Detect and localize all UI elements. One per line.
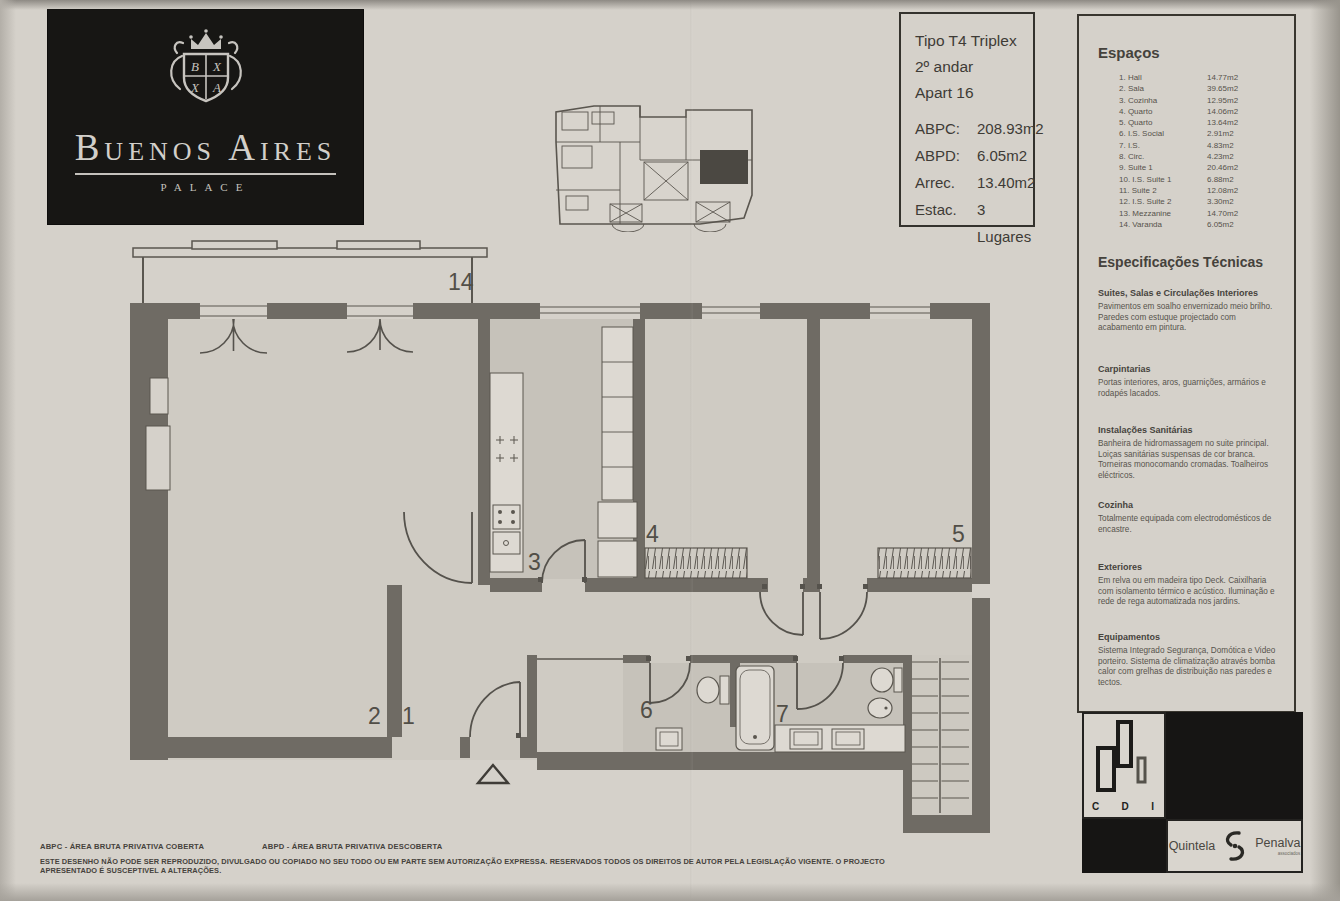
space-row: 13. Mezzanine14.70m2 [1119,208,1289,219]
unit-metric-row: ABPD:6.05m2 [915,142,1033,169]
agency-logo-cell: Quintela Penalva associados [1166,819,1303,873]
room-label-2: 2 [368,703,381,729]
agency-swirl-icon [1222,830,1248,862]
logo-grid-dark-cell [1082,819,1166,873]
toilet-icon [871,668,893,692]
balcony [133,241,487,303]
room-label-7: 7 [776,701,789,727]
key-plan-diagram [548,96,760,232]
crest-letter: X [190,80,200,95]
agency-name-right: Penalva [1255,836,1300,850]
crest-letter: A [212,80,221,95]
copyright-disclaimer: ESTE DESENHO NÃO PODE SER REPRODUZIDO, D… [40,857,940,875]
cdi-letters: C D I [1092,801,1154,812]
space-row: 10. I.S. Suite 16.88m2 [1119,174,1289,185]
agency-sub-label: associados [1278,851,1301,856]
unit-metrics: ABPC:208.93m2ABPD:6.05m2Arrec.13.40m2Est… [915,115,1033,250]
legend-abpd: ABPD - ÁREA BRUTA PRIVATIVA DESCOBERTA [262,842,442,851]
space-row: 7. I.S.4.83m2 [1119,140,1289,151]
space-row: 5. Quarto13.64m2 [1119,117,1289,128]
cdi-letter: D [1122,801,1129,812]
space-row: 3. Cozinha12.95m2 [1119,95,1289,106]
area-legend: ABPC - ÁREA BRUTA PRIVATIVA COBERTAABPD … [40,842,500,851]
space-row: 1. Hall14.77m2 [1119,72,1289,83]
cdi-logo-icon [1094,720,1156,798]
room-label-3: 3 [528,549,541,575]
entrance-triangle-icon [478,765,508,783]
cdi-logo-cell: C D I [1082,712,1166,819]
room-label-14: 14 [448,269,474,295]
floorplan-sheet: B X X A Buenos Aires PALACE [0,0,1340,901]
technical-specs-title: Especificações Técnicas [1098,254,1263,270]
brand-subtitle: PALACE [48,181,363,193]
crest-letter: B [191,59,199,74]
bidet-icon [868,698,892,718]
unit-info-box: Tipo T4 Triplex2º andarApart 16 ABPC:208… [899,12,1035,227]
agency-name-left: Quintela [1169,839,1216,853]
space-row: 6. I.S. Social2.91m2 [1119,128,1289,139]
cdi-letter: I [1151,801,1154,812]
spec-section: CozinhaTotalmente equipada com electrodo… [1098,500,1278,535]
unit-metric-row: ABPC:208.93m2 [915,115,1033,142]
room-label-5: 5 [952,521,965,547]
room-label-4: 4 [646,521,659,547]
unit-info-line: 2º andar [915,54,1033,80]
key-plan-unit-highlight [700,150,748,184]
cdi-letter: C [1092,801,1099,812]
floorplan-svg: 142134567 [120,236,1000,852]
brand-title: Buenos Aires [48,126,363,169]
spaces-title: Espaços [1098,44,1160,61]
space-row: 4. Quarto14.06m2 [1119,106,1289,117]
logo-grid: C D I Quintela Penalva associados [1082,712,1303,873]
unit-info-lines: Tipo T4 Triplex2º andarApart 16 [915,28,1033,106]
spaces-list: 1. Hall14.77m22. Sala39.65m23. Cozinha12… [1119,72,1289,230]
spec-section: ExterioresEm relva ou em madeira tipo De… [1098,562,1278,608]
spec-section: Suites, Salas e Circulações InterioresPa… [1098,288,1278,334]
spec-section: CarpintariasPortas interiores, aros, gua… [1098,364,1278,399]
brand-rule [75,173,336,175]
photo-edge [1310,0,1340,901]
space-row: 9. Suite 120.46m2 [1119,162,1289,173]
unit-info-line: Tipo T4 Triplex [915,28,1033,54]
space-row: 12. I.S. Suite 23.30m2 [1119,196,1289,207]
crest-icon: B X X A [146,26,266,126]
spec-section: EquipamentosSistema Integrado Segurança,… [1098,632,1278,688]
unit-info-line: Apart 16 [915,80,1033,106]
space-row: 2. Sala39.65m2 [1119,83,1289,94]
brand-logo-box: B X X A Buenos Aires PALACE [48,10,363,224]
photo-edge [0,0,16,901]
unit-metric-row: Arrec.13.40m2 [915,169,1033,196]
room-label-6: 6 [640,697,653,723]
specs-panel: Espaços 1. Hall14.77m22. Sala39.65m23. C… [1077,14,1296,713]
space-row: 8. Circ.4.23m2 [1119,151,1289,162]
paper-crease [690,0,693,901]
legend-abpc: ABPC - ÁREA BRUTA PRIVATIVA COBERTA [40,842,204,851]
space-row: 11. Suite 212.08m2 [1119,185,1289,196]
photo-edge [0,883,1340,901]
room-label-1: 1 [402,703,415,729]
crest-letter: X [212,59,222,74]
toilet-icon [697,677,719,703]
spec-section: Instalações SanitáriasBanheira de hidrom… [1098,425,1278,481]
logo-grid-dark-cell [1166,712,1303,819]
space-row: 14. Varanda6.05m2 [1119,219,1289,230]
photo-edge [0,0,1340,10]
